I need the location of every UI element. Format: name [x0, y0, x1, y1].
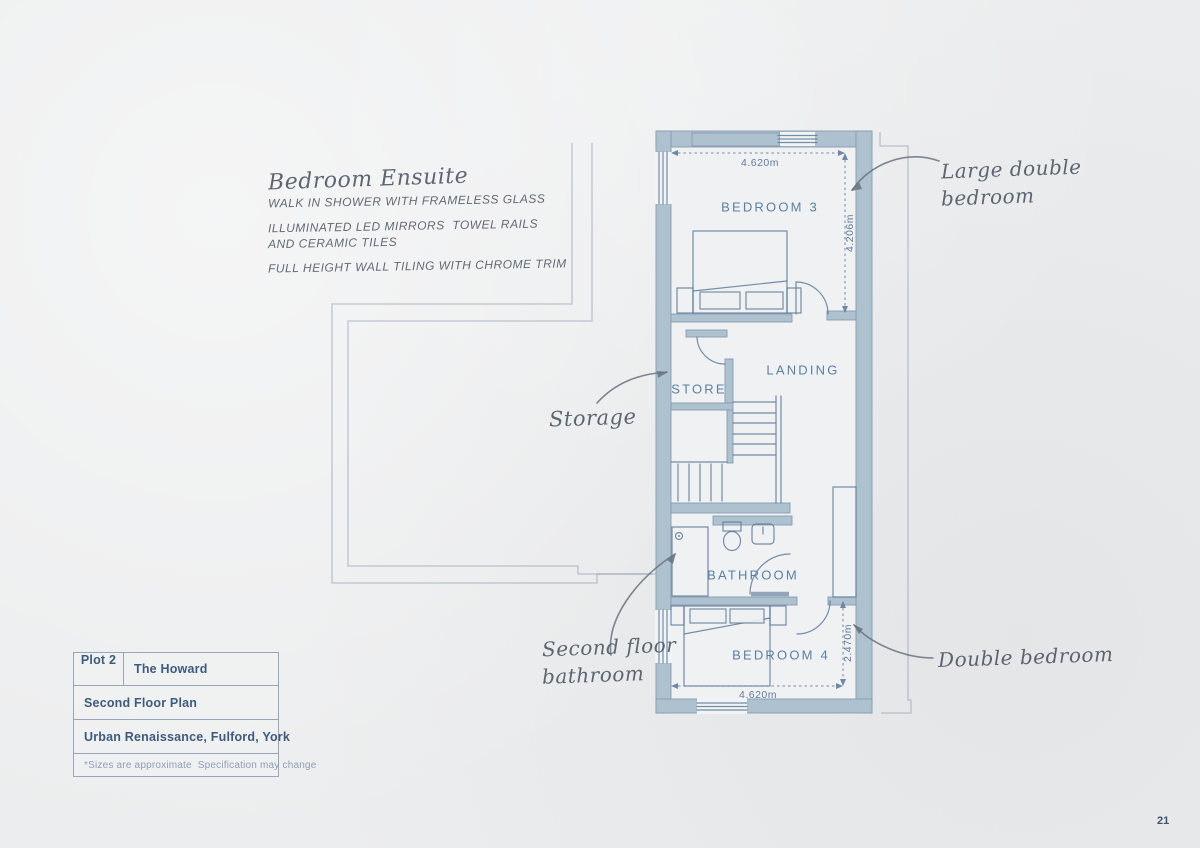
title-block-row-plot: Plot 2 The Howard — [74, 653, 278, 685]
title-block-row-disclaimer: *Sizes are approximate Specification may… — [74, 753, 278, 777]
house-name: The Howard — [124, 662, 208, 676]
title-block-row-development: Urban Renaissance, Fulford, York — [74, 719, 278, 753]
annotation-storage: Storage — [549, 404, 637, 431]
annotation-large-double-line2: bedroom — [941, 183, 1035, 210]
room-label-landing: LANDING — [766, 363, 839, 378]
room-label-store: STORE — [671, 382, 727, 397]
floor-plan-name: Second Floor Plan — [74, 696, 197, 710]
title-block: Plot 2 The Howard Second Floor Plan Urba… — [73, 652, 279, 777]
adjoining-outline — [880, 132, 911, 713]
room-label-bedroom4: BEDROOM 4 — [732, 648, 830, 663]
dim-bedroom4-width: 4.620m — [728, 689, 788, 701]
brochure-page: BEDROOM 3 LANDING STORE BATHROOM BEDROOM… — [0, 0, 1200, 848]
dim-bedroom3-width: 4.620m — [730, 157, 790, 169]
plan-interior — [656, 131, 872, 713]
annotation-ensuite-line3: AND CERAMIC TILES — [268, 235, 397, 251]
dim-bedroom4-depth: 2.470m — [842, 613, 854, 673]
lower-floor-outline — [332, 143, 656, 583]
disclaimer-text: *Sizes are approximate Specification may… — [74, 760, 317, 771]
page-number: 21 — [1157, 815, 1169, 827]
annotation-second-floor-line1: Second floor — [542, 633, 677, 662]
development-name: Urban Renaissance, Fulford, York — [74, 730, 290, 744]
annotation-large-double-line1: Large double — [941, 155, 1082, 184]
window-bedroom3 — [655, 152, 672, 204]
room-label-bedroom3: BEDROOM 3 — [721, 200, 819, 215]
plot-number: Plot 2 — [74, 653, 124, 685]
window-top — [692, 133, 780, 146]
dim-bedroom3-depth: 4.206m — [844, 203, 856, 263]
annotation-second-floor-line2: bathroom — [542, 661, 645, 689]
room-label-bathroom: BATHROOM — [707, 568, 799, 583]
title-block-row-floor: Second Floor Plan — [74, 685, 278, 719]
